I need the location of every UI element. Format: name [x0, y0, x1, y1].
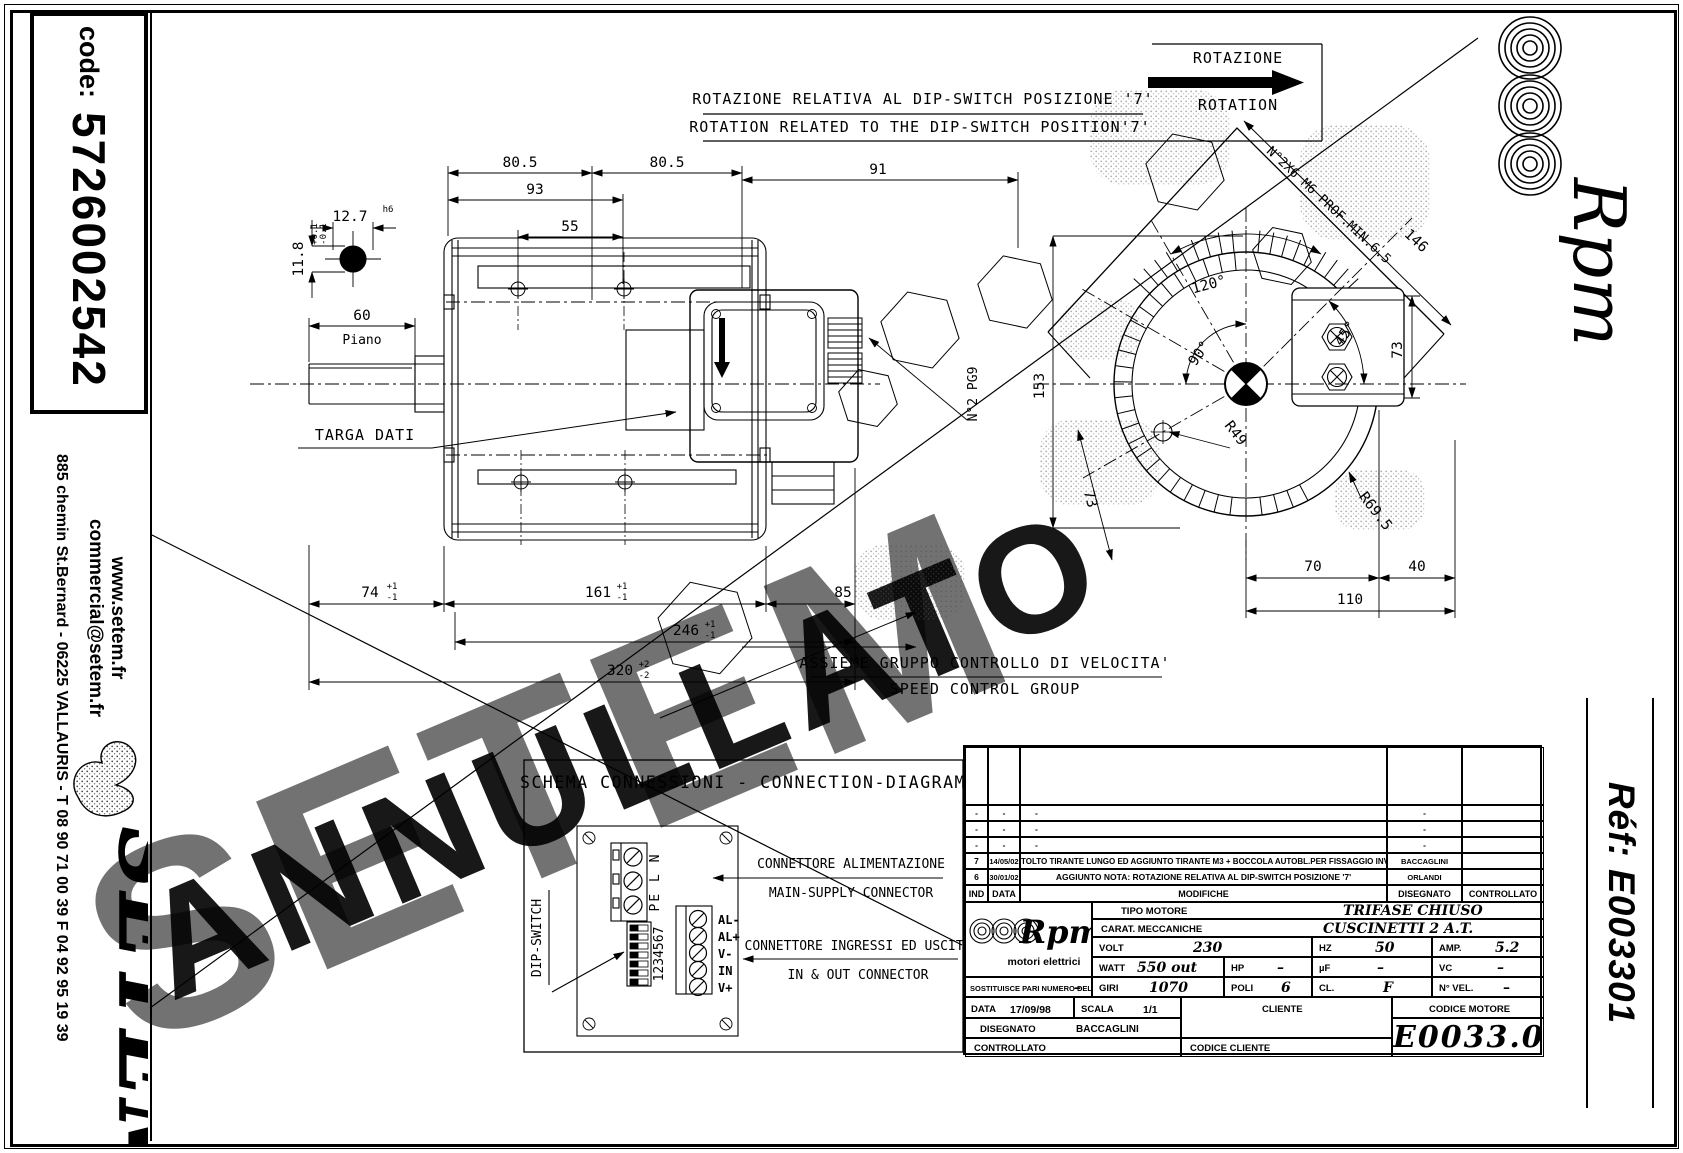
- svg-text:153: 153: [1032, 373, 1048, 399]
- website-link[interactable]: www.setem.fr: [106, 498, 128, 738]
- svg-text:60: 60: [353, 308, 370, 324]
- svg-text:CONNETTORE INGRESSI ED USCITE: CONNETTORE INGRESSI ED USCITE: [745, 939, 972, 954]
- rpm-coil-logo: [1492, 14, 1572, 204]
- svg-text:-1: -1: [617, 593, 628, 603]
- rev-row: 6: [965, 869, 988, 885]
- code-value: 5726002542: [62, 112, 116, 388]
- sidebar-divider: [150, 10, 152, 1141]
- title-block: - - - - - - - - - - - - 7 14/05/02 TOLTO…: [963, 745, 1542, 1055]
- email-link[interactable]: commercial@setem.fr: [84, 498, 106, 738]
- rev-row: -: [965, 837, 988, 853]
- svg-text:80.5: 80.5: [503, 155, 538, 171]
- svg-text:-1: -1: [705, 631, 716, 641]
- rev-row: -: [965, 821, 988, 837]
- rev-row: -: [965, 805, 988, 821]
- svg-text:-2: -2: [639, 671, 650, 681]
- svg-text:AL+: AL+: [718, 930, 740, 944]
- svg-text:ROTATION RELATED TO THE DIP-SW: ROTATION RELATED TO THE DIP-SWITCH POSIT…: [689, 118, 1150, 136]
- svg-text:110: 110: [1337, 592, 1363, 608]
- ref-rule-left: [1586, 698, 1588, 1108]
- svg-text:N°2 PG9: N°2 PG9: [966, 367, 981, 422]
- rpm-titleblock-logo: Rpm motori elettrici: [965, 902, 1092, 977]
- svg-text:Rpm: Rpm: [1019, 913, 1092, 951]
- svg-text:PE L N: PE L N: [648, 853, 663, 912]
- svg-text:+1: +1: [617, 582, 628, 592]
- svg-text:85: 85: [834, 585, 851, 601]
- svg-text:h6: h6: [383, 205, 394, 215]
- svg-text:IN & OUT CONNECTOR: IN & OUT CONNECTOR: [788, 968, 929, 983]
- svg-text:+1: +1: [387, 582, 398, 592]
- svg-text:TARGA DATI: TARGA DATI: [315, 426, 415, 444]
- svg-text:74: 74: [361, 585, 379, 601]
- svg-text:-0.1: -0.1: [319, 223, 329, 245]
- code-box: code: 5726002542: [30, 12, 148, 414]
- svg-text:+2: +2: [639, 660, 650, 670]
- rpm-wordmark: Rpm: [1556, 178, 1642, 338]
- svg-text:V-: V-: [718, 947, 732, 961]
- swan-icon: [74, 742, 136, 816]
- ref-rule-right: [1652, 698, 1654, 1108]
- svg-text:SCHEMA CONNESSIONI - CONNECTIO: SCHEMA CONNESSIONI - CONNECTION-DIAGRAM: [520, 773, 966, 792]
- svg-text:V+: V+: [718, 981, 732, 995]
- svg-text:161: 161: [585, 585, 611, 601]
- rev-row: 7: [965, 853, 988, 869]
- svg-text:DIP-SWITCH: DIP-SWITCH: [530, 899, 545, 977]
- svg-text:55: 55: [561, 219, 578, 235]
- svg-text:11.8: 11.8: [291, 242, 307, 277]
- svg-text:motori elettrici: motori elettrici: [1008, 956, 1081, 968]
- carat-value: CUSCINETTI 2 A.T.: [1323, 921, 1473, 937]
- motor-side-view: [250, 231, 880, 545]
- setem-logo: SETEM: [56, 735, 148, 1145]
- svg-text:ROTAZIONE RELATIVA AL DIP-SWIT: ROTAZIONE RELATIVA AL DIP-SWITCH POSIZIO…: [692, 90, 1153, 108]
- svg-text:CONNETTORE ALIMENTAZIONE: CONNETTORE ALIMENTAZIONE: [757, 857, 945, 872]
- codice-motore: E0033.01: [1392, 1018, 1544, 1057]
- svg-text:90°: 90°: [1186, 338, 1214, 369]
- targa-dati-callout: TARGA DATI: [298, 412, 676, 448]
- svg-text:ROTAZIONE: ROTAZIONE: [1193, 49, 1283, 67]
- svg-text:73: 73: [1080, 488, 1100, 509]
- svg-text:120°: 120°: [1190, 273, 1228, 297]
- setem-logo-text: SETEM: [99, 827, 148, 1145]
- svg-text:91: 91: [869, 162, 886, 178]
- svg-text:40: 40: [1408, 559, 1425, 575]
- svg-text:Piano: Piano: [342, 333, 381, 348]
- svg-text:-1: -1: [387, 593, 398, 603]
- svg-text:R49: R49: [1221, 418, 1250, 448]
- svg-text:12.7: 12.7: [333, 209, 368, 225]
- ref-code: Réf: E003301: [1592, 700, 1650, 1106]
- drawing-sheet: SETEM ANNULLATO: [0, 0, 1683, 1153]
- svg-text:246: 246: [673, 623, 699, 639]
- svg-text:70: 70: [1304, 559, 1321, 575]
- svg-text:SPEED CONTROL GROUP: SPEED CONTROL GROUP: [890, 680, 1081, 698]
- svg-text:ROTATION: ROTATION: [1198, 96, 1278, 114]
- svg-text:AL-: AL-: [718, 913, 740, 927]
- svg-text:73: 73: [1390, 341, 1406, 358]
- svg-text:+1: +1: [705, 620, 716, 630]
- svg-text:93: 93: [526, 182, 543, 198]
- tipo-motore-value: TRIFASE CHIUSO: [1343, 903, 1483, 919]
- svg-text:80.5: 80.5: [650, 155, 685, 171]
- code-label: code:: [74, 26, 105, 98]
- svg-text:IN: IN: [718, 964, 732, 978]
- svg-text:1234567: 1234567: [652, 927, 667, 982]
- svg-text:ASSIEME GRUPPO CONTROLLO DI VE: ASSIEME GRUPPO CONTROLLO DI VELOCITA': [799, 654, 1170, 672]
